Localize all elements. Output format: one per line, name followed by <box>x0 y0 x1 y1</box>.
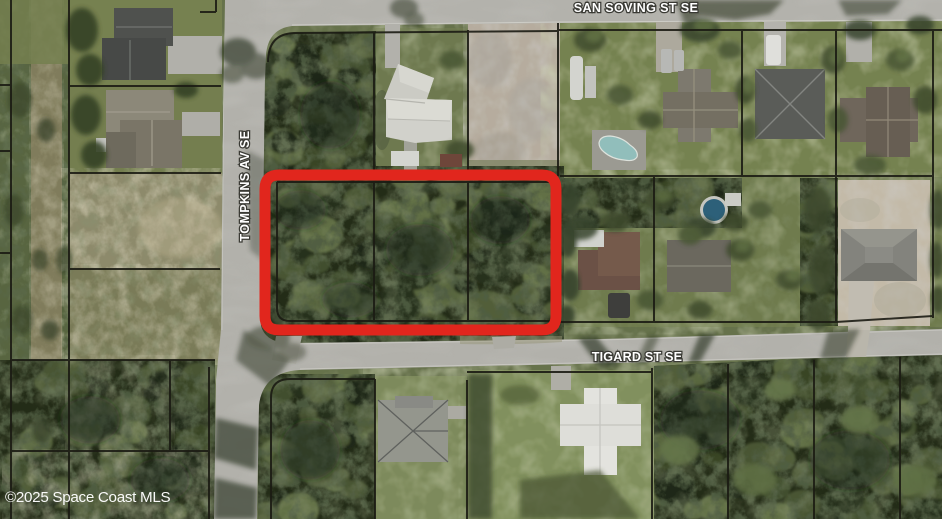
svg-text:TIGARD ST SE: TIGARD ST SE <box>592 350 683 364</box>
svg-text:TOMPKINS AV SE: TOMPKINS AV SE <box>238 130 252 241</box>
svg-text:©2025 Space Coast MLS: ©2025 Space Coast MLS <box>5 489 170 506</box>
svg-text:SAN SOVING ST SE: SAN SOVING ST SE <box>574 1 699 15</box>
